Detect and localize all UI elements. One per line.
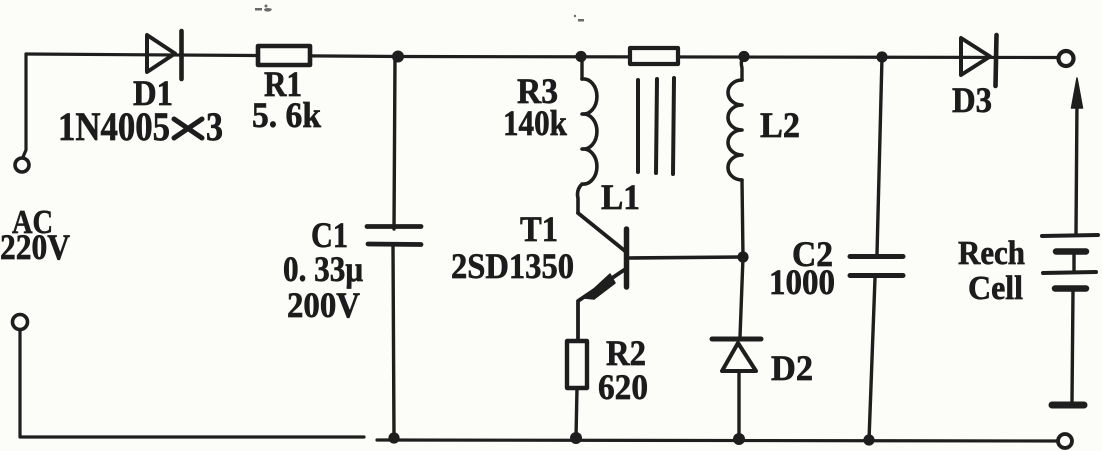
- svg-text:0. 33μ: 0. 33μ: [283, 249, 363, 289]
- svg-text:2SD1350: 2SD1350: [451, 246, 574, 286]
- svg-text:D3: D3: [952, 80, 992, 120]
- svg-text:D2: D2: [771, 348, 813, 388]
- svg-text:T1: T1: [520, 209, 558, 249]
- svg-text:5. 6k: 5. 6k: [252, 95, 321, 135]
- svg-text:220V: 220V: [0, 227, 70, 267]
- svg-text:3: 3: [206, 104, 223, 149]
- svg-text:Rech: Rech: [958, 235, 1025, 272]
- svg-text:Cell: Cell: [968, 270, 1023, 307]
- svg-text:140k: 140k: [503, 103, 567, 143]
- svg-text:L1: L1: [601, 177, 640, 217]
- svg-text:1N4005: 1N4005: [58, 104, 170, 149]
- svg-text:620: 620: [598, 367, 648, 407]
- svg-text:1000: 1000: [769, 262, 835, 302]
- svg-text:L2: L2: [760, 105, 800, 145]
- svg-text:200V: 200V: [287, 285, 360, 325]
